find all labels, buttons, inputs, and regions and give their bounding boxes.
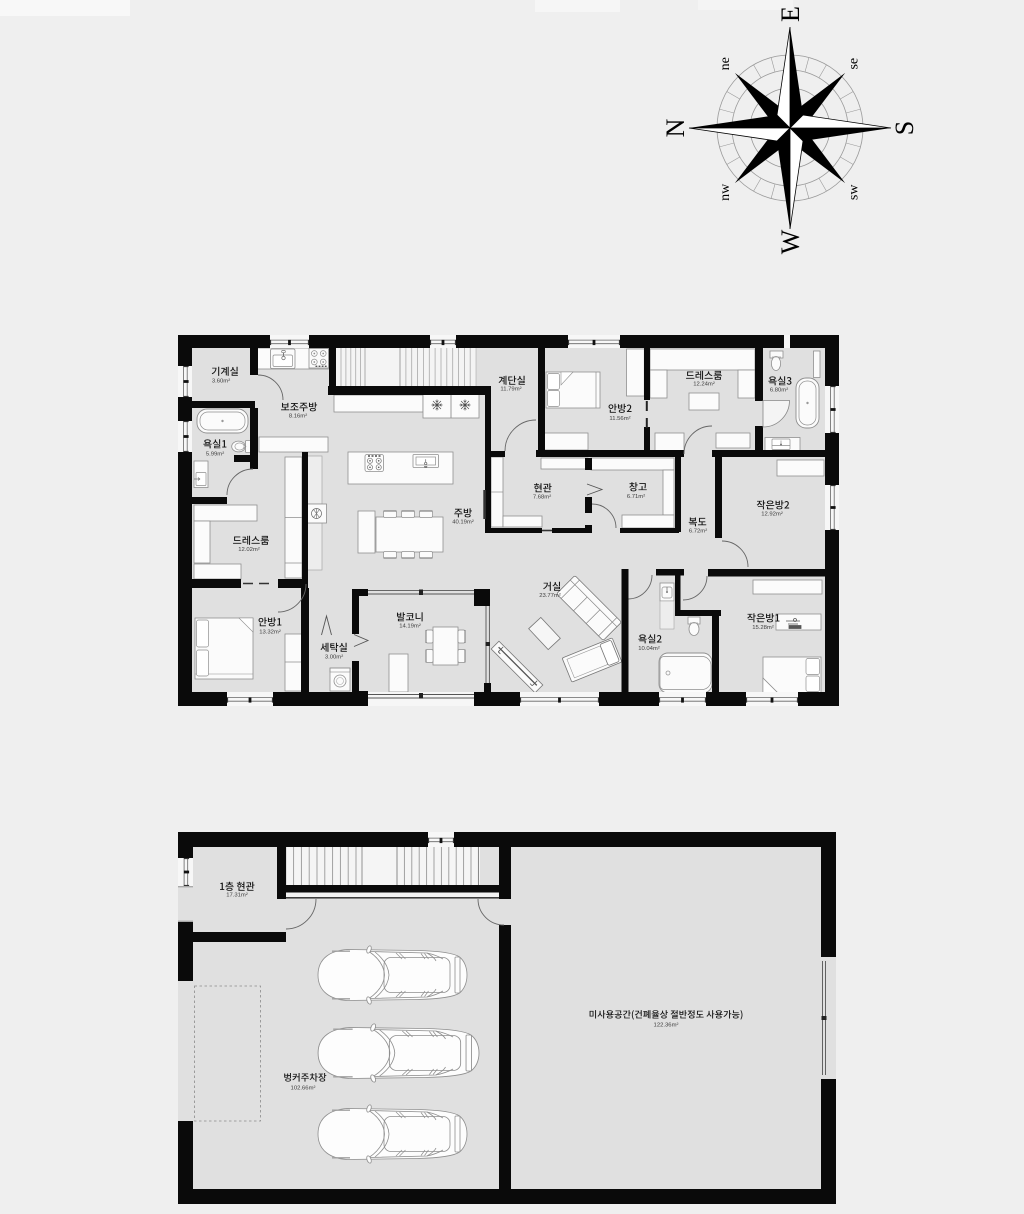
svg-text:23.77m²: 23.77m² <box>539 593 561 599</box>
svg-text:11.56m²: 11.56m² <box>609 416 630 422</box>
svg-text:se: se <box>847 58 862 70</box>
svg-text:14.19m²: 14.19m² <box>399 624 421 630</box>
svg-text:N: N <box>661 118 690 137</box>
svg-text:W: W <box>776 229 805 254</box>
svg-text:12.02m²: 12.02m² <box>238 547 260 553</box>
svg-text:15.28m²: 15.28m² <box>752 625 774 631</box>
svg-text:nw: nw <box>718 183 733 201</box>
svg-text:17.31m²: 17.31m² <box>226 893 248 899</box>
svg-text:sw: sw <box>847 184 862 200</box>
svg-text:6.80m²: 6.80m² <box>770 388 788 394</box>
svg-text:6.72m²: 6.72m² <box>689 529 707 535</box>
svg-text:10.04m²: 10.04m² <box>638 646 660 652</box>
svg-text:6.71m²: 6.71m² <box>627 494 645 500</box>
svg-text:7.68m²: 7.68m² <box>533 495 551 501</box>
svg-text:8.16m²: 8.16m² <box>289 414 307 420</box>
svg-text:5.99m²: 5.99m² <box>206 452 224 458</box>
svg-text:13.32m²: 13.32m² <box>259 630 281 636</box>
svg-text:3.60m²: 3.60m² <box>212 379 230 385</box>
svg-text:102.66m²: 102.66m² <box>291 1086 316 1092</box>
svg-text:3.00m²: 3.00m² <box>325 655 343 661</box>
svg-text:11.79m²: 11.79m² <box>500 387 521 393</box>
svg-text:40.19m²: 40.19m² <box>452 520 474 526</box>
svg-text:122.36m²: 122.36m² <box>654 1023 679 1029</box>
svg-text:S: S <box>890 121 919 135</box>
svg-text:E: E <box>776 6 805 22</box>
svg-text:12.24m²: 12.24m² <box>693 382 715 388</box>
svg-text:ne: ne <box>718 57 733 70</box>
svg-text:12.92m²: 12.92m² <box>761 512 783 518</box>
